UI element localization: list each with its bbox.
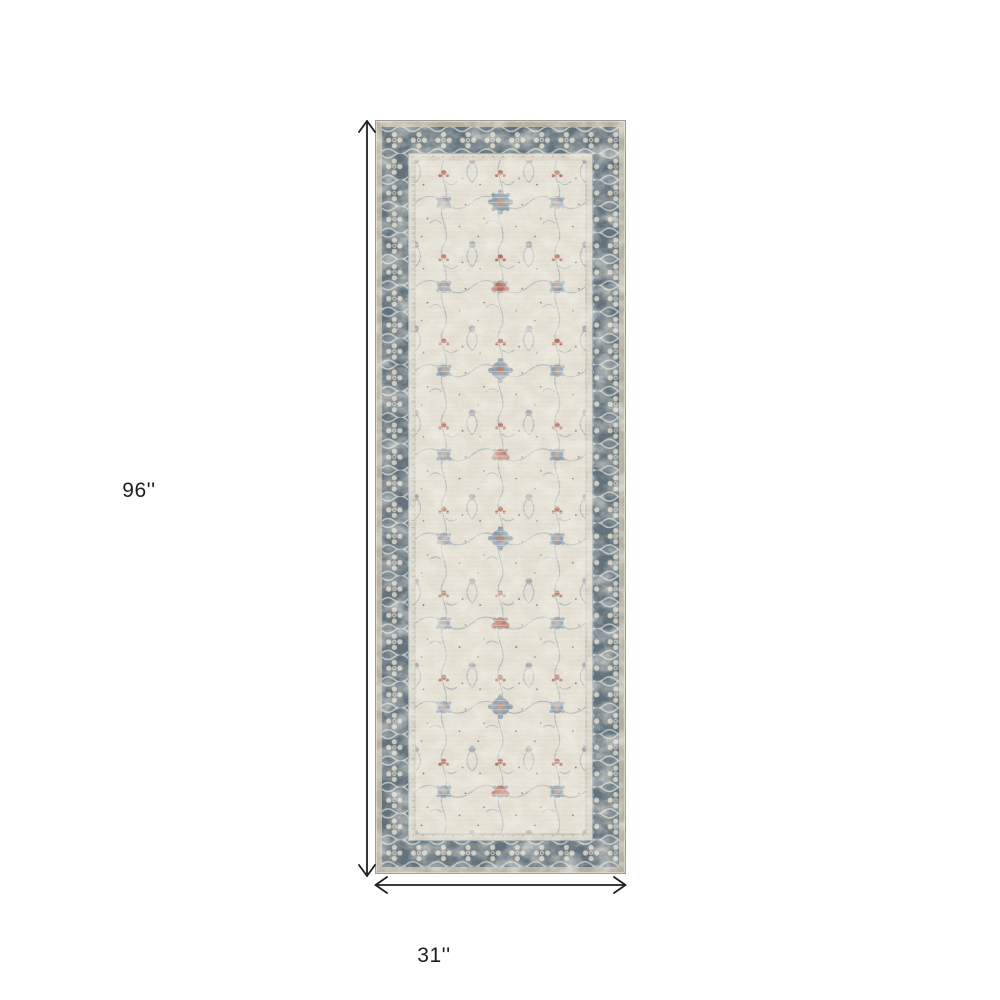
width-dimension-label: 31'' [417,944,450,968]
height-dimension-label: 96'' [122,479,155,503]
rug-image [375,120,626,874]
product-dimension-diagram: 96'' 31'' [0,0,1000,1000]
height-dimension-arrow [359,121,375,876]
width-dimension-arrow [376,877,626,893]
